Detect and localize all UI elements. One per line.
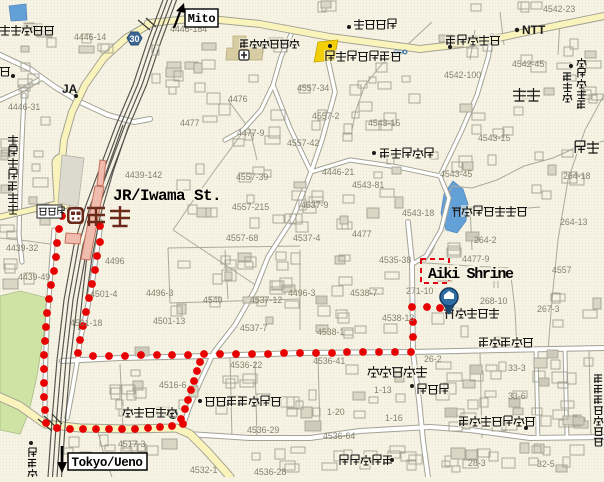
svg-text:4501-4: 4501-4 bbox=[90, 289, 117, 299]
svg-text:4536-29: 4536-29 bbox=[247, 425, 279, 435]
svg-text:4537-4: 4537-4 bbox=[293, 233, 320, 243]
svg-text:33-6: 33-6 bbox=[508, 391, 526, 401]
svg-text:JR/Iwama St.: JR/Iwama St. bbox=[113, 187, 221, 205]
svg-text:4496: 4496 bbox=[105, 256, 125, 266]
svg-text:4536-28: 4536-28 bbox=[254, 467, 286, 477]
svg-text:4542-23: 4542-23 bbox=[543, 4, 575, 14]
svg-text:30: 30 bbox=[129, 34, 139, 44]
svg-text:4439-142: 4439-142 bbox=[125, 170, 162, 180]
svg-text:4542-45: 4542-45 bbox=[512, 59, 544, 69]
svg-text:4543-18: 4543-18 bbox=[402, 208, 434, 218]
svg-text:33-3: 33-3 bbox=[508, 363, 526, 373]
svg-text:4476: 4476 bbox=[228, 94, 248, 104]
svg-text:4477-9: 4477-9 bbox=[237, 128, 264, 138]
svg-text:4516-6: 4516-6 bbox=[159, 380, 186, 390]
svg-text:4536-64: 4536-64 bbox=[323, 431, 355, 441]
svg-text:Tokyo/Ueno: Tokyo/Ueno bbox=[71, 456, 142, 470]
svg-text:4439-32: 4439-32 bbox=[6, 243, 38, 253]
svg-text:271-10: 271-10 bbox=[406, 286, 433, 296]
svg-text:4543-15: 4543-15 bbox=[478, 133, 510, 143]
svg-text:Mito: Mito bbox=[188, 12, 216, 26]
svg-text:Aiki Shrine: Aiki Shrine bbox=[428, 266, 514, 283]
svg-text:264-18: 264-18 bbox=[563, 171, 590, 181]
svg-text:4538-13: 4538-13 bbox=[382, 313, 414, 323]
svg-text:4446-31: 4446-31 bbox=[8, 102, 40, 112]
svg-text:1-13: 1-13 bbox=[374, 385, 392, 395]
svg-text:4557-39: 4557-39 bbox=[236, 172, 268, 182]
svg-text:32-5: 32-5 bbox=[537, 459, 555, 469]
svg-text:NTT: NTT bbox=[522, 23, 546, 37]
svg-text:4543-15: 4543-15 bbox=[368, 118, 400, 128]
svg-text:26-2: 26-2 bbox=[424, 354, 442, 364]
svg-text:4557-68: 4557-68 bbox=[226, 233, 258, 243]
svg-text:4477-9: 4477-9 bbox=[462, 254, 489, 264]
svg-text:4501-18: 4501-18 bbox=[70, 318, 102, 328]
svg-text:4439-49: 4439-49 bbox=[18, 272, 50, 282]
svg-text:4557-2: 4557-2 bbox=[312, 111, 339, 121]
svg-text:4540: 4540 bbox=[203, 295, 223, 305]
svg-text:4543-81: 4543-81 bbox=[352, 180, 384, 190]
svg-text:4537-12: 4537-12 bbox=[250, 295, 282, 305]
svg-text:4501-13: 4501-13 bbox=[153, 316, 185, 326]
svg-text:268-10: 268-10 bbox=[480, 296, 507, 306]
svg-text:4538-1: 4538-1 bbox=[317, 327, 344, 337]
svg-text:4536-22: 4536-22 bbox=[230, 360, 262, 370]
svg-text:4557-34: 4557-34 bbox=[297, 83, 329, 93]
svg-text:4535-38: 4535-38 bbox=[379, 255, 411, 265]
svg-text:4477: 4477 bbox=[352, 229, 372, 239]
svg-text:4496-3: 4496-3 bbox=[146, 288, 173, 298]
svg-text:4536-41: 4536-41 bbox=[313, 356, 345, 366]
svg-text:4557: 4557 bbox=[552, 265, 572, 275]
svg-text:4538-7: 4538-7 bbox=[350, 288, 377, 298]
svg-text:4446-14: 4446-14 bbox=[74, 32, 106, 42]
svg-text:4543-45: 4543-45 bbox=[440, 169, 472, 179]
svg-text:264-2: 264-2 bbox=[474, 235, 497, 245]
svg-text:4537-7: 4537-7 bbox=[240, 323, 267, 333]
svg-text:1-16: 1-16 bbox=[385, 413, 403, 423]
svg-text:267-3: 267-3 bbox=[537, 304, 560, 314]
svg-text:4517-3: 4517-3 bbox=[118, 439, 145, 449]
svg-text:4532-1: 4532-1 bbox=[190, 465, 217, 475]
svg-text:4542-100: 4542-100 bbox=[444, 70, 481, 80]
svg-text:4477: 4477 bbox=[180, 118, 200, 128]
svg-text:4496-3: 4496-3 bbox=[288, 288, 315, 298]
svg-text:1-20: 1-20 bbox=[327, 407, 345, 417]
svg-text:JA: JA bbox=[62, 82, 78, 96]
svg-text:4446-21: 4446-21 bbox=[322, 167, 354, 177]
svg-text:4557-42: 4557-42 bbox=[287, 138, 319, 148]
svg-text:28-3: 28-3 bbox=[468, 458, 486, 468]
svg-text:4557-215: 4557-215 bbox=[232, 202, 269, 212]
svg-text:264-13: 264-13 bbox=[560, 217, 587, 227]
svg-text:4537-9: 4537-9 bbox=[301, 200, 328, 210]
